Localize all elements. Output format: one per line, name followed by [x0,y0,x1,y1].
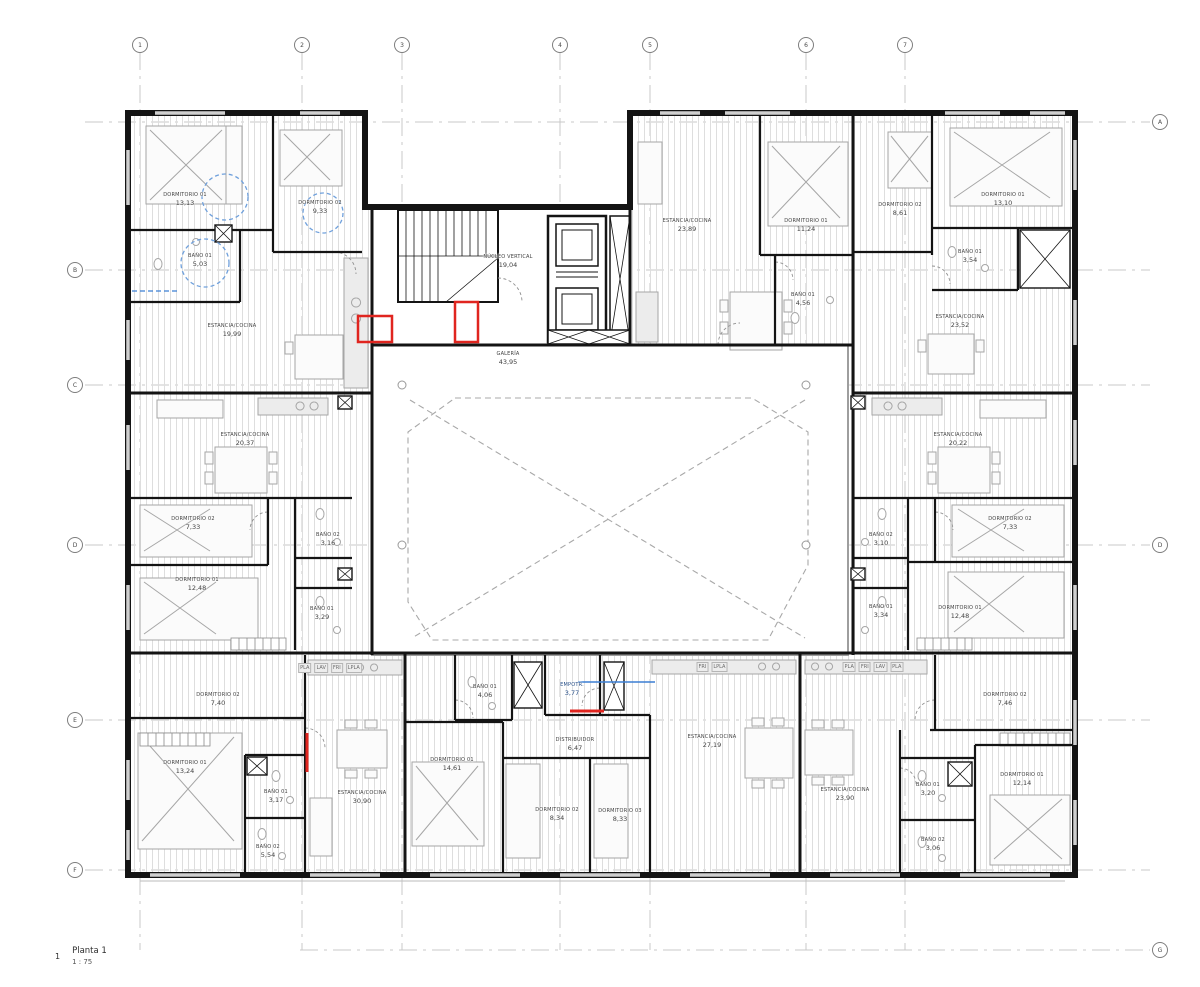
room-label-mr-estancia: ESTANCIA/COCINA20,22 [934,432,983,448]
room-label-tm-estancia: ESTANCIA/COCINA23,89 [663,218,712,234]
room-label-bl-estancia: ESTANCIA/COCINA30,90 [338,790,387,806]
room-label-tr-bano-01: BAÑO 013,54 [958,249,982,265]
appliance-labels-bottom-right: PLAFRILAVPLA [843,662,904,672]
grid-bubble-3: 3 [394,37,410,53]
room-label-tr-dormitorio-02: DORMITORIO 028,61 [878,202,921,218]
room-label-bl-dormitorio-02: DORMITORIO 027,40 [196,692,239,708]
room-label-br-bano-02: BAÑO 023,06 [921,837,945,853]
room-label-mr-bano-01: BAÑO 013,34 [869,604,893,620]
room-label-bl-bano-01: BAÑO 013,17 [264,789,288,805]
room-label-br-dormitorio-01: DORMITORIO 0112,14 [1000,772,1043,788]
grid-bubble-5: 5 [642,37,658,53]
grid-bubble-left-d: D [67,537,83,553]
appliance-labels-bottom-left: PLALAVFRILPLA [298,663,362,673]
room-label-bm-estancia: ESTANCIA/COCINA27,19 [688,734,737,750]
room-label-ml-dormitorio-01: DORMITORIO 0112,48 [175,577,218,593]
grid-bubble-left-e: E [67,712,83,728]
room-label-bm-dormitorio-02: DORMITORIO 028,34 [535,807,578,823]
grid-bubble-right-d: D [1152,537,1168,553]
room-label-galeria: GALERÍA43,95 [496,351,519,367]
room-label-mr-bano-02: BAÑO 023,10 [869,532,893,548]
room-label-bm-bano-01: BAÑO 014,06 [473,684,497,700]
room-label-br-dormitorio-02: DORMITORIO 027,46 [983,692,1026,708]
grid-bubble-right-a: A [1152,114,1168,130]
grid-bubble-2: 2 [294,37,310,53]
room-label-tm-bano-01: BAÑO 014,56 [791,292,815,308]
room-label-br-bano-01: BAÑO 013,20 [916,782,940,798]
room-label-bm-distribuidor: DISTRIBUIDOR6,47 [556,737,595,753]
grid-bubble-1: 1 [132,37,148,53]
room-label-bm-dormitorio-01: DORMITORIO 0114,61 [430,757,473,773]
room-label-tr-dormitorio-01: DORMITORIO 0113,10 [981,192,1024,208]
room-label-br-estancia: ESTANCIA/COCINA23,90 [821,787,870,803]
grid-bubble-6: 6 [798,37,814,53]
room-label-bm-dormitorio-03: DORMITORIO 038,33 [598,808,641,824]
room-label-tm-dormitorio-01: DORMITORIO 0111,24 [784,218,827,234]
room-label-nucleo-vertical: NÚCLEO VERTICAL19,04 [483,254,532,270]
sheet-number: 1 [55,946,60,966]
grid-bubble-left-b: B [67,262,83,278]
drawing-scale: 1 : 75 [72,958,107,966]
room-label-ml-estancia: ESTANCIA/COCINA20,37 [221,432,270,448]
appliance-labels-bottom-mid: FRILPLA [697,662,728,672]
grid-bubble-7: 7 [897,37,913,53]
room-label-bl-bano-02: BAÑO 025,54 [256,844,280,860]
grid-bubble-4: 4 [552,37,568,53]
drawing-title: Planta 1 [72,946,107,956]
room-label-ml-bano-02: BAÑO 023,16 [316,532,340,548]
room-label-tl-dormitorio-02: DORMITORIO 029,33 [298,200,341,216]
title-block: 1 Planta 1 1 : 75 [55,946,107,966]
room-label-ml-bano-01: BAÑO 013,29 [310,606,334,622]
room-label-tr-estancia: ESTANCIA/COCINA23,52 [936,314,985,330]
room-label-ml-dormitorio-02: DORMITORIO 027,33 [171,516,214,532]
floor-plan-svg [0,0,1200,987]
grid-bubble-left-f: F [67,862,83,878]
room-label-tl-dormitorio-01: DORMITORIO 0113,13 [163,192,206,208]
room-label-tl-bano-01: BAÑO 015,03 [188,253,212,269]
grid-bubble-left-c: C [67,377,83,393]
grid-bubble-right-g: G [1152,942,1168,958]
room-label-mr-dormitorio-02: DORMITORIO 027,33 [988,516,1031,532]
elevator-core [548,216,630,344]
room-label-bl-dormitorio-01: DORMITORIO 0113,24 [163,760,206,776]
courtyard [372,345,848,655]
room-label-mr-dormitorio-01: DORMITORIO 0112,48 [938,605,981,621]
floor-plan-sheet: 1 2 3 4 5 6 7 B C D E F A D G DORMITORIO… [0,0,1200,987]
room-label-bm-empotrado: EMPOTR.3,77 [560,682,584,698]
room-label-tl-estancia: ESTANCIA/COCINA19,99 [208,323,257,339]
